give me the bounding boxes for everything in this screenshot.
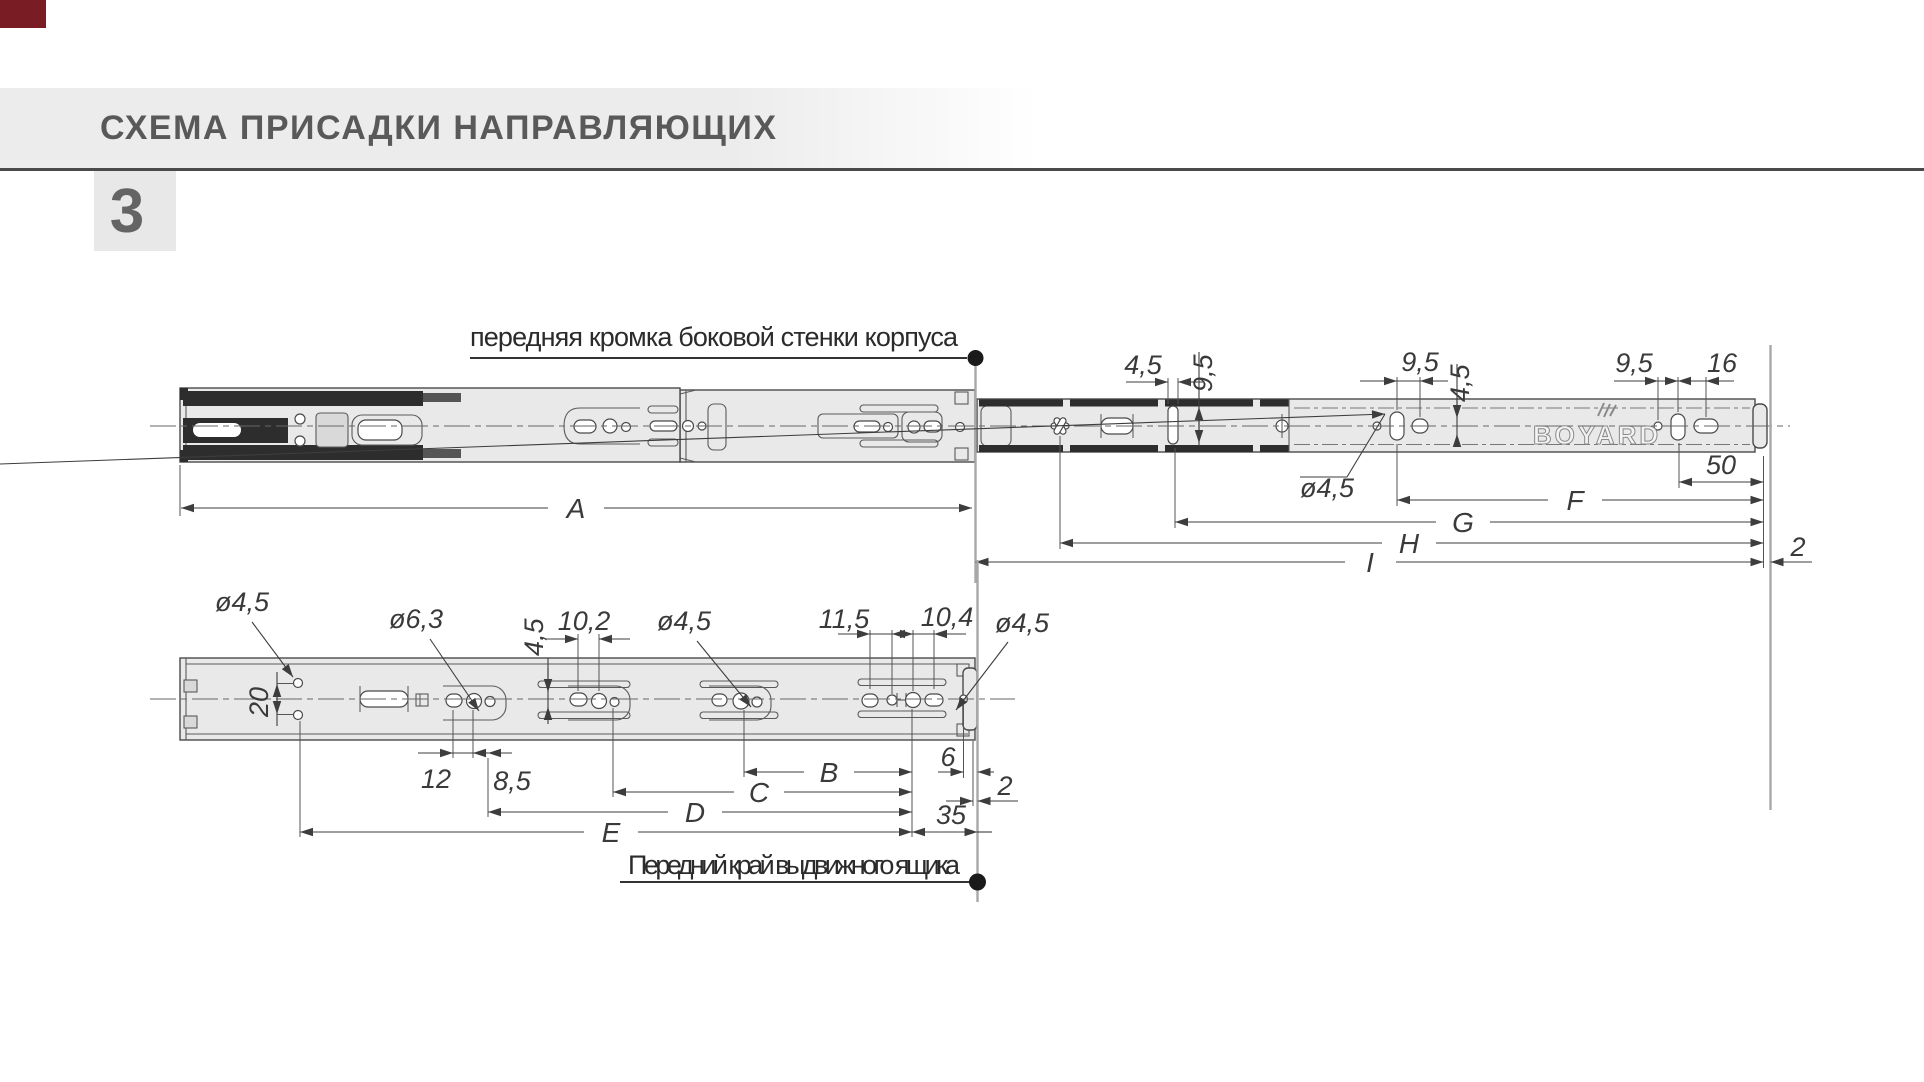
dim-pitch-85: 8,5: [493, 766, 532, 796]
dim-letter-g: G: [1452, 507, 1474, 538]
bottom-view-drawing: ø4,5 20 ø6,3 12 8,5: [150, 560, 1050, 902]
vertical-slot: [1168, 406, 1178, 444]
dim-slot-width: 4,5: [1124, 350, 1163, 380]
drawer-edge-label: Передний край выдвижного ящика: [628, 850, 961, 880]
dim-mid-offset: 4,5: [1445, 363, 1475, 402]
dim-pitch-102: 10,2: [558, 606, 611, 636]
dim-pitch-104: 10,4: [921, 602, 974, 632]
dim-hole-dia-left: ø4,5: [215, 587, 270, 617]
drawer-edge-marker-dot: [969, 874, 986, 891]
dim-hole-dia: ø4,5: [1300, 473, 1355, 503]
boyard-logo-text: BOYARD: [1533, 420, 1661, 450]
cabinet-edge-label: передняя кромка боковой стенки корпуса: [470, 322, 959, 352]
drawing-canvas: BOYARD: [0, 0, 1924, 1082]
dim-letter-d: D: [685, 797, 705, 828]
dim-letter-e: E: [602, 817, 621, 848]
dim-slot-height: 9,5: [1188, 353, 1218, 392]
dim-front-offset: 6: [940, 742, 956, 772]
dim-rear-offset: 50: [1706, 450, 1736, 480]
cabinet-edge-callout: передняя кромка боковой стенки корпуса: [470, 322, 984, 366]
dim-letter-i: I: [1366, 547, 1374, 578]
dim-rear-slot: 16: [1707, 348, 1738, 378]
drawer-edge-callout: Передний край выдвижного ящика: [620, 850, 986, 891]
rear-vertical-oval: [1671, 414, 1685, 440]
left-hole-bottom: [294, 711, 303, 720]
dim-letter-b: B: [820, 757, 839, 788]
dim-letter-f: F: [1566, 485, 1585, 516]
dim-mid-pitch: 9,5: [1401, 347, 1440, 377]
dim-front-pitch: 35: [936, 800, 967, 830]
dim-hole-pitch-vert: 20: [244, 687, 274, 718]
edge-marker-dot: [968, 350, 984, 366]
dim-letter-c: C: [749, 777, 770, 808]
dim-hole-dia-front: ø4,5: [995, 608, 1050, 638]
dim-rear-pitch: 9,5: [1615, 348, 1654, 378]
page: СХЕМА ПРИСАДКИ НАПРАВЛЯЮЩИХ 3: [0, 0, 1924, 1082]
dim-hole-dia-mid: ø4,5: [657, 606, 712, 636]
dim-letter-a: A: [565, 493, 586, 524]
dim-back-gap: 2: [1789, 532, 1805, 562]
dim-offset-45: 4,5: [519, 617, 549, 656]
dim-hole-dia-center: ø6,3: [389, 604, 443, 634]
dim-pitch-12: 12: [421, 764, 451, 794]
dim-letter-h: H: [1399, 528, 1420, 559]
dim-front-gap: 2: [996, 771, 1012, 801]
inner-rail: [180, 388, 680, 462]
left-hole-top: [294, 679, 303, 688]
dim-pitch-115: 11,5: [819, 604, 871, 634]
